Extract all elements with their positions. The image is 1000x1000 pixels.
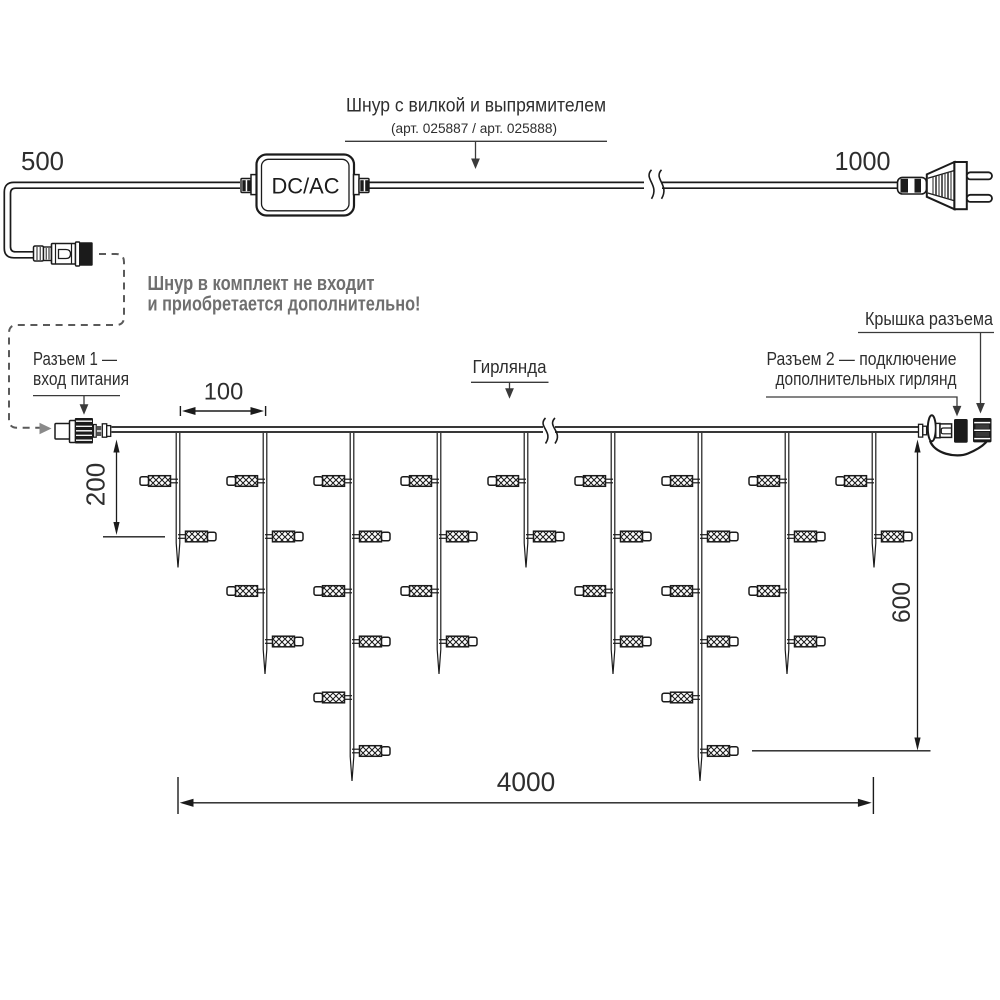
- svg-text:Гирлянда: Гирлянда: [473, 356, 548, 377]
- svg-text:Шнур с вилкой и выпрямителем: Шнур с вилкой и выпрямителем: [346, 95, 606, 117]
- svg-text:200: 200: [81, 463, 111, 507]
- svg-text:Разъем 1 —: Разъем 1 —: [33, 349, 117, 369]
- svg-text:500: 500: [21, 146, 64, 176]
- svg-text:Шнур в комплект не входит: Шнур в комплект не входит: [148, 273, 375, 295]
- svg-text:Крышка разъема: Крышка разъема: [865, 308, 994, 329]
- svg-text:4000: 4000: [497, 767, 556, 797]
- svg-text:DC/AC: DC/AC: [272, 174, 340, 199]
- svg-text:1000: 1000: [835, 146, 891, 176]
- svg-text:600: 600: [888, 582, 916, 623]
- svg-text:дополнительных гирлянд: дополнительных гирлянд: [776, 368, 957, 389]
- svg-text:(арт. 025887 / арт. 025888): (арт. 025887 / арт. 025888): [391, 121, 557, 137]
- svg-text:и приобретается дополнительно!: и приобретается дополнительно!: [148, 294, 421, 316]
- svg-text:Разъем 2 — подключение: Разъем 2 — подключение: [767, 348, 957, 369]
- svg-text:вход питания: вход питания: [33, 369, 129, 389]
- svg-text:100: 100: [204, 379, 244, 406]
